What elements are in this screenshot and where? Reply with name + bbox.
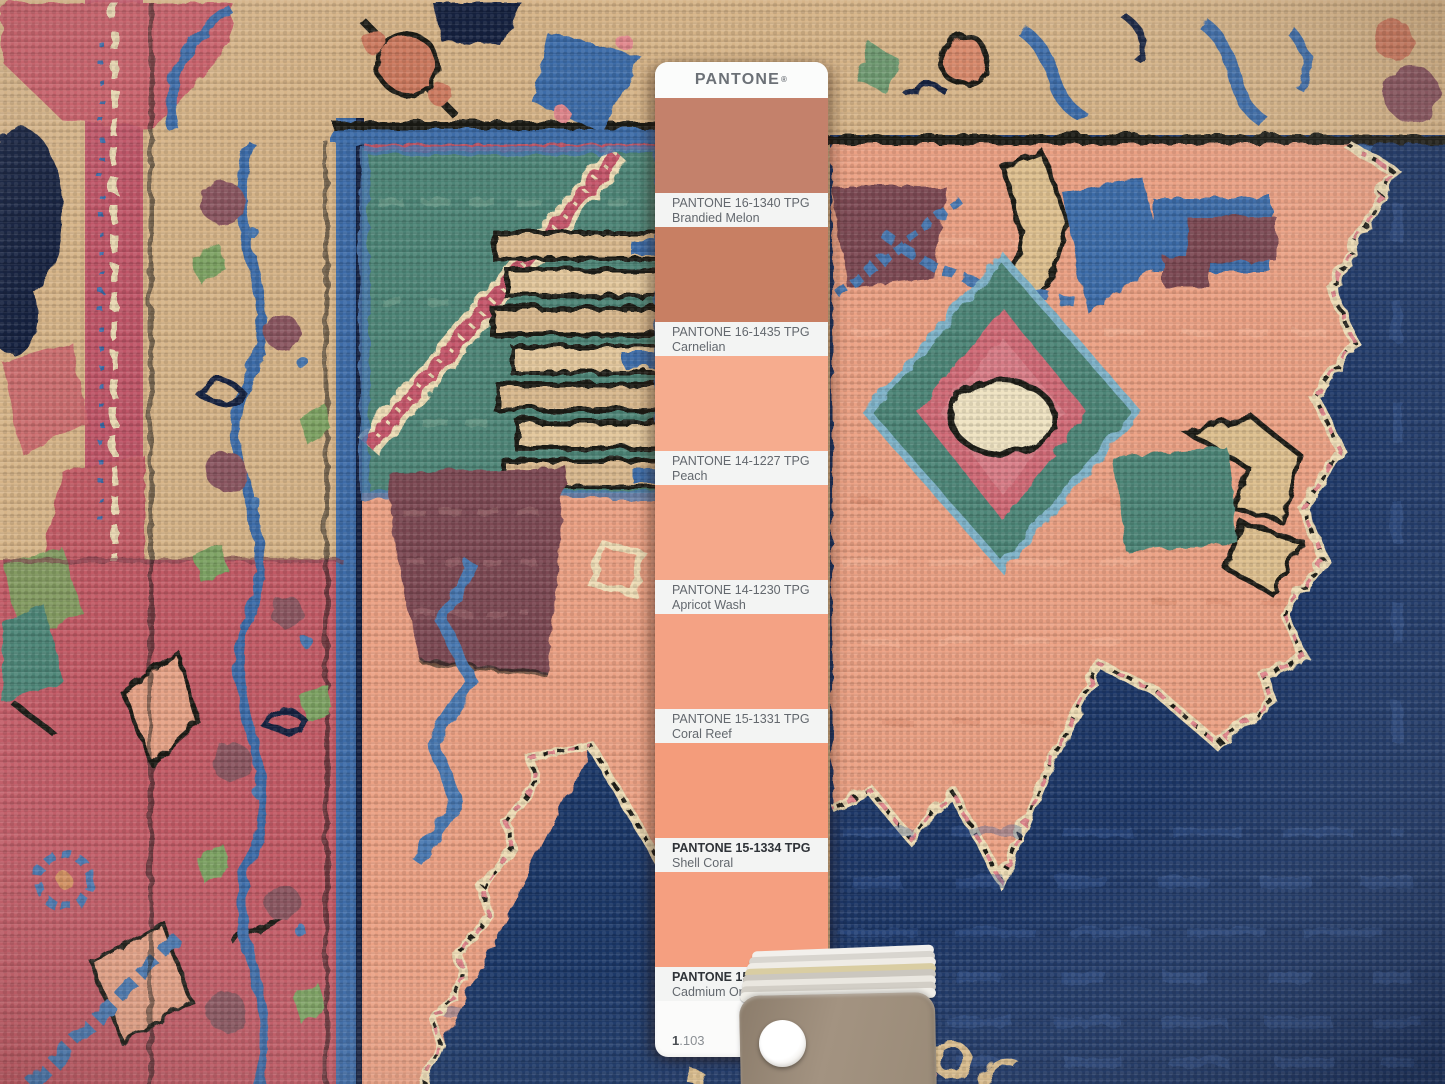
chip-color-swatch [655,356,828,451]
chip-name: Apricot Wash [672,598,828,613]
chip-color-swatch [655,485,828,580]
pantone-chip: PANTONE 14-1230 TPG Apricot Wash [655,485,828,614]
pantone-chip: PANTONE 15-1331 TPG Coral Reef [655,614,828,743]
page-number-minor: .103 [679,1033,704,1048]
chip-color-swatch [655,98,828,193]
chip-code: PANTONE 16-1340 TPG [672,196,828,211]
chip-color-swatch [655,227,828,322]
chip-color-swatch [655,614,828,709]
chip-name: Shell Coral [672,856,828,871]
chip-code: PANTONE 14-1227 TPG [672,454,828,469]
photo-of-rug-with-pantone-guide: PANTONE® PANTONE 16-1340 TPG Brandied Me… [0,0,1445,1084]
page-number-major: 1 [672,1033,679,1048]
pantone-chip: PANTONE 14-1227 TPG Peach [655,356,828,485]
pantone-strip-card: PANTONE® PANTONE 16-1340 TPG Brandied Me… [655,62,828,1057]
chip-name: Peach [672,469,828,484]
chip-name: Coral Reef [672,727,828,742]
chip-code: PANTONE 15-1331 TPG [672,712,828,727]
pantone-chip: PANTONE 16-1340 TPG Brandied Melon [655,98,828,227]
chip-label: PANTONE 16-1435 TPG Carnelian [655,322,828,356]
chip-color-swatch [655,743,828,838]
fan-deck-grommet [759,1020,806,1067]
chip-name: Brandied Melon [672,211,828,226]
chip-code: PANTONE 16-1435 TPG [672,325,828,340]
swatch-fan-deck [738,948,948,1084]
pantone-chip: PANTONE 16-1435 TPG Carnelian [655,227,828,356]
chip-label: PANTONE 16-1340 TPG Brandied Melon [655,193,828,227]
chip-label: PANTONE 14-1230 TPG Apricot Wash [655,580,828,614]
pantone-wordmark: PANTONE [695,71,780,89]
chip-label: PANTONE 14-1227 TPG Peach [655,451,828,485]
pantone-brand-header: PANTONE® [655,62,828,98]
chip-name: Carnelian [672,340,828,355]
chip-label: PANTONE 15-1334 TPG Shell Coral [655,838,828,872]
chip-label: PANTONE 15-1331 TPG Coral Reef [655,709,828,743]
chip-code: PANTONE 15-1334 TPG [672,841,828,856]
chip-code: PANTONE 14-1230 TPG [672,583,828,598]
pantone-chip: PANTONE 15-1334 TPG Shell Coral [655,743,828,872]
